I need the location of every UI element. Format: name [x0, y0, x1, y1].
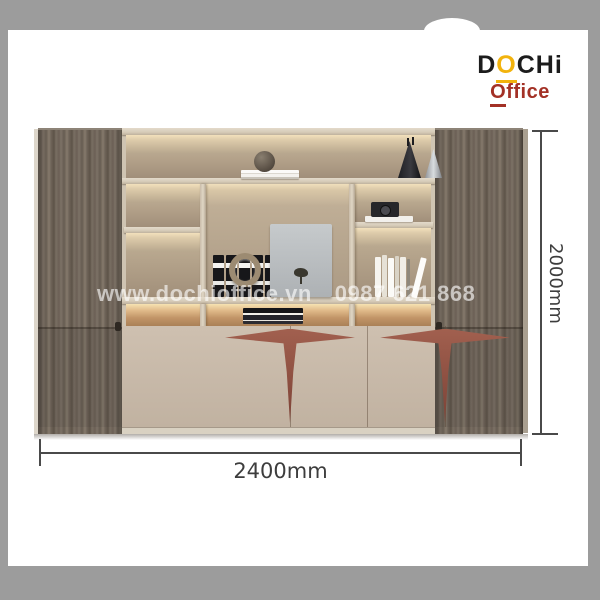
- brand-name: DOCHi: [455, 53, 585, 78]
- niche-cell: [355, 304, 431, 326]
- cabinet-top-board: [122, 128, 435, 135]
- left-upper-cell: [126, 184, 200, 227]
- watermark-website: www.dochioffice.vn: [97, 281, 312, 307]
- width-dimension-line: [40, 452, 521, 454]
- height-dimension-label: 2000mm: [545, 228, 565, 338]
- book-stack-icon: [241, 170, 299, 179]
- bonsai-tree-icon: [294, 268, 308, 277]
- logo-letters: ffice: [506, 81, 550, 103]
- camera-icon: [371, 202, 399, 217]
- width-dimension-label: 2400mm: [40, 459, 521, 483]
- height-dimension-tick-top: [532, 130, 558, 132]
- brand-logo: DOCHi Office: [455, 53, 585, 102]
- cabinet-right-edge: [523, 129, 528, 433]
- vase-stems-icon: [407, 138, 409, 146]
- brand-subname: Office: [455, 82, 585, 102]
- logo-letter-o-red: O: [490, 81, 506, 107]
- niche-cell: [126, 304, 200, 326]
- logo-letters: CHi: [517, 51, 563, 79]
- page-background: DOCHi Office: [0, 0, 600, 600]
- logo-letter: D: [477, 51, 496, 79]
- door-handle-notch: [115, 322, 121, 331]
- height-dimension-tick-bottom: [532, 433, 558, 435]
- logo-letter-o-yellow: O: [496, 51, 516, 83]
- watermark-phone: 0987 621 868: [335, 281, 476, 307]
- niche-partition: [200, 304, 206, 326]
- panel-lower-door: [38, 329, 122, 427]
- sphere-decor-icon: [254, 151, 275, 172]
- plinth: [122, 427, 435, 434]
- cabinet-doors: [122, 326, 435, 427]
- spike-handle-icon: [225, 328, 355, 424]
- height-dimension-line: [540, 131, 542, 434]
- watermark: www.dochioffice.vn 0987 621 868: [97, 281, 475, 307]
- flat-books-icon: [243, 308, 303, 324]
- door-seam: [367, 326, 368, 427]
- cabinet-shadow: [34, 434, 528, 440]
- niche-partition: [349, 304, 355, 326]
